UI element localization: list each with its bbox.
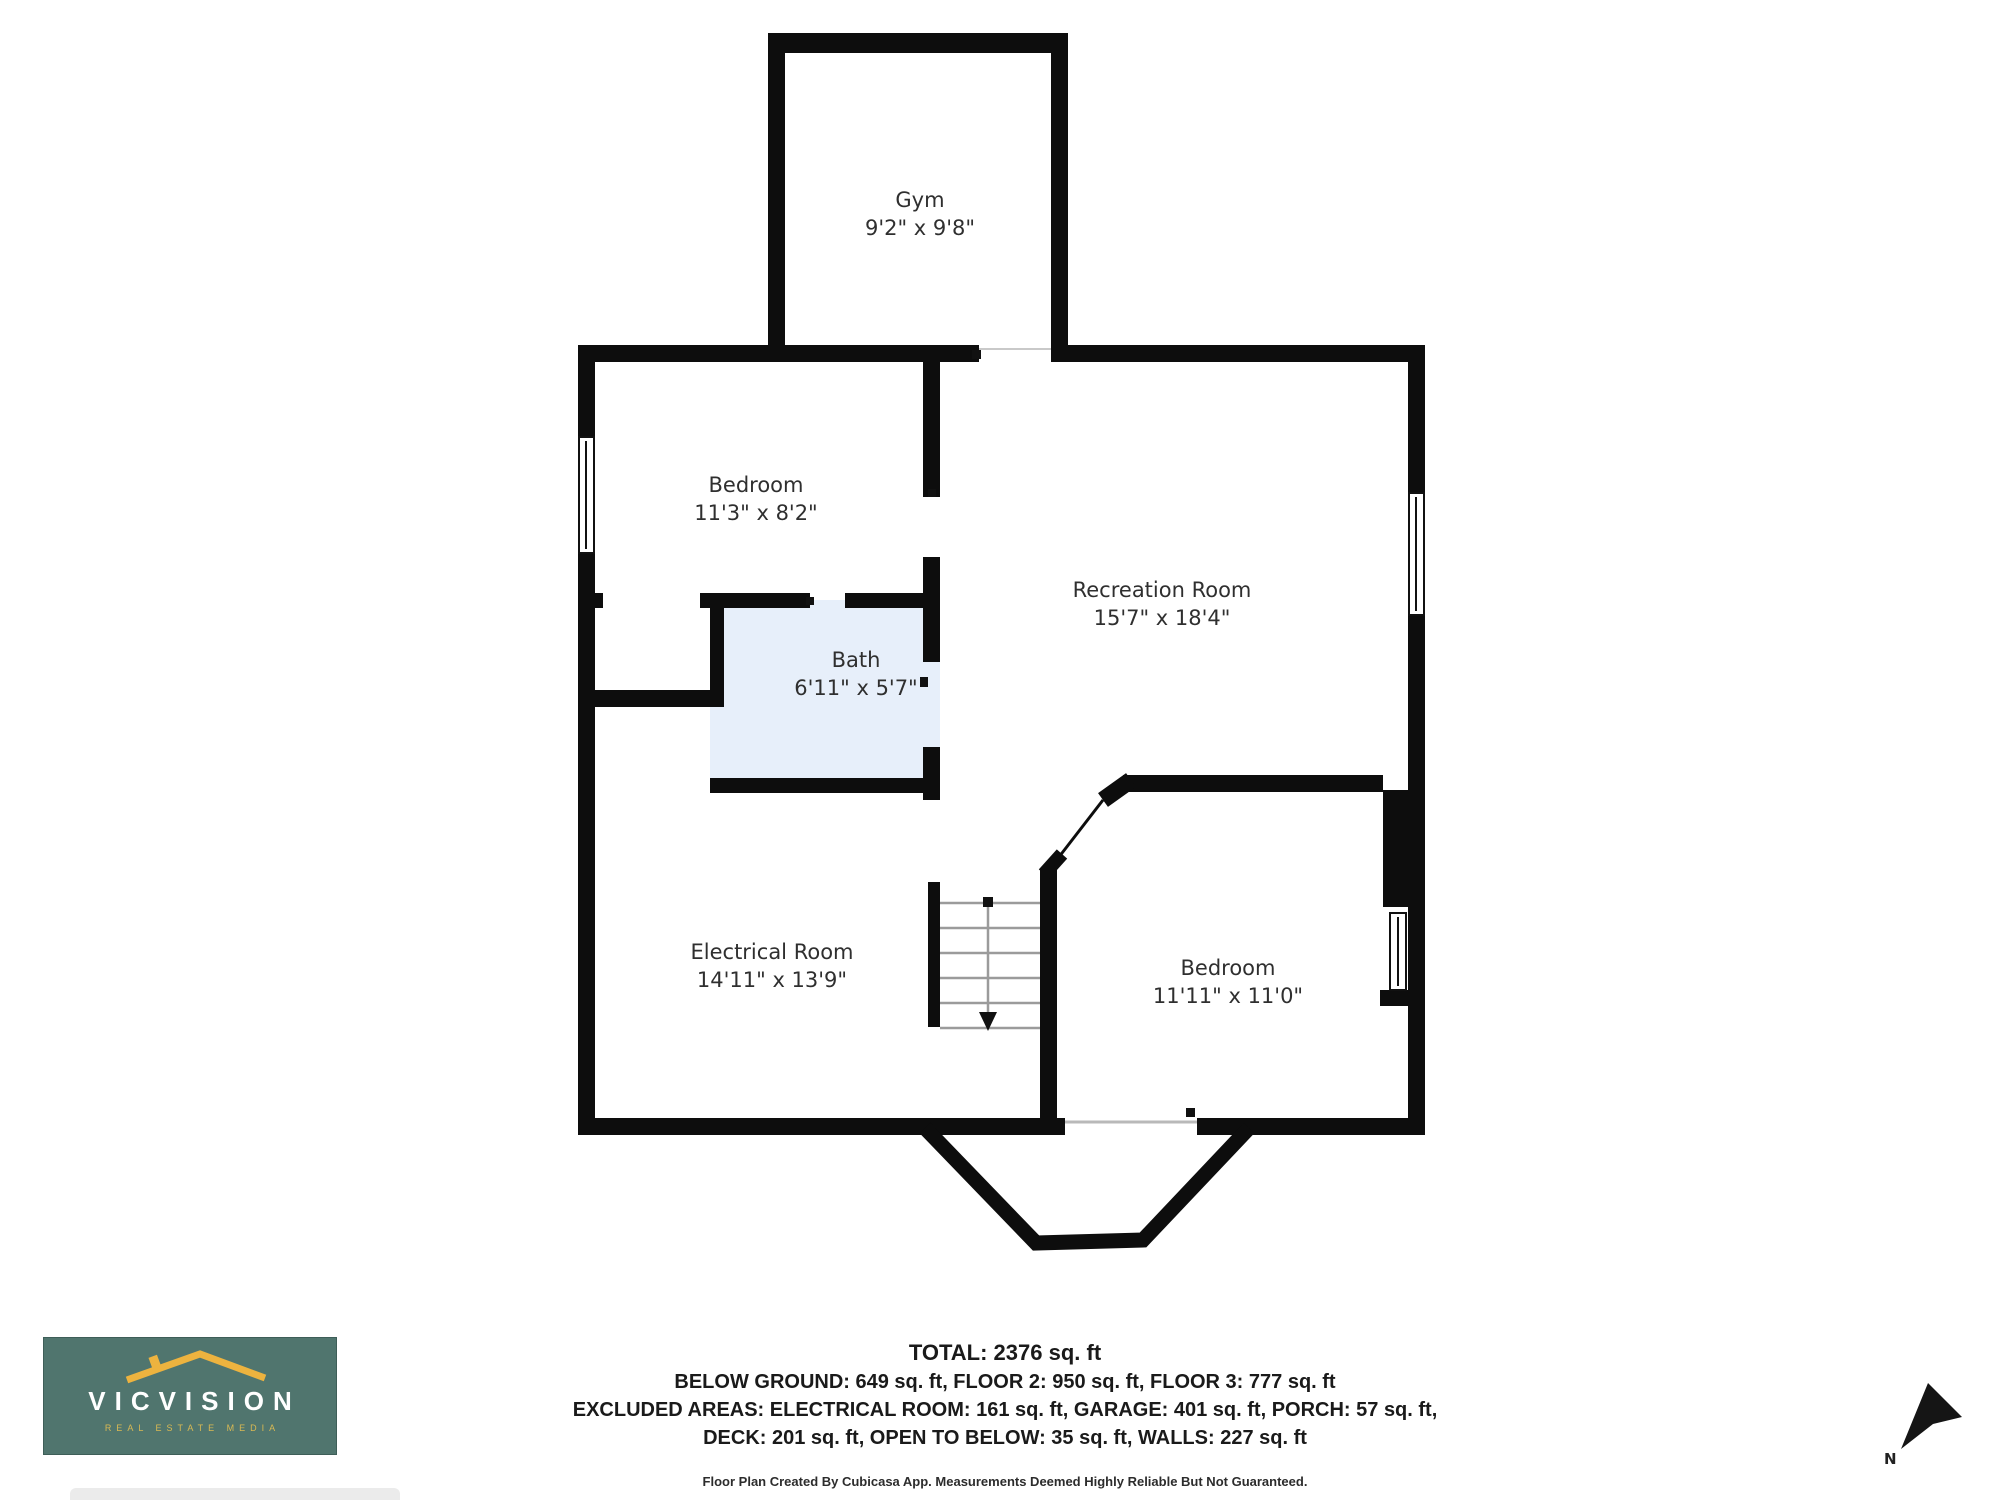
excluded-areas-text-2: DECK: 201 sq. ft, OPEN TO BELOW: 35 sq. … [573,1427,1438,1450]
compass-north-arrow: N [1884,1383,1962,1468]
logo-brand-text: VICVISION [79,1386,300,1417]
credit-text: Floor Plan Created By Cubicasa App. Meas… [573,1474,1438,1489]
room-name: Bedroom [694,471,817,499]
floor-plan-drawing: N [0,0,2000,1500]
room-name: Bedroom [1153,954,1303,982]
room-label-bedroom-upper: Bedroom 11'3" x 8'2" [694,471,817,527]
vicvision-logo: VICVISION REAL ESTATE MEDIA [43,1337,337,1455]
room-dimensions: 11'3" x 8'2" [694,499,817,527]
room-dimensions: 11'11" x 11'0" [1153,982,1303,1010]
logo-tagline-text: REAL ESTATE MEDIA [100,1423,280,1433]
stairs-icon [940,897,1040,1031]
room-dimensions: 15'7" x 18'4" [1073,604,1252,632]
room-label-recreation-room: Recreation Room 15'7" x 18'4" [1073,576,1252,632]
room-dimensions: 6'11" x 5'7" [794,674,917,702]
room-name: Recreation Room [1073,576,1252,604]
bottom-edge-strip [70,1488,400,1500]
room-label-bedroom-lower: Bedroom 11'11" x 11'0" [1153,954,1303,1010]
compass-label: N [1884,1450,1897,1468]
room-dimensions: 9'2" x 9'8" [865,214,975,242]
floor-plan-page: N Gym 9'2" x 9'8" Bedroom 11'3" x 8'2" R… [0,0,2000,1500]
room-name: Gym [865,186,975,214]
room-name: Bath [794,646,917,674]
roof-icon [105,1346,275,1384]
total-area-text: TOTAL: 2376 sq. ft [573,1340,1438,1366]
room-label-electrical-room: Electrical Room 14'11" x 13'9" [691,938,854,994]
floor-areas-text: BELOW GROUND: 649 sq. ft, FLOOR 2: 950 s… [573,1371,1438,1394]
area-summary: TOTAL: 2376 sq. ft BELOW GROUND: 649 sq.… [573,1340,1438,1489]
room-name: Electrical Room [691,938,854,966]
room-label-gym: Gym 9'2" x 9'8" [865,186,975,242]
room-label-bath: Bath 6'11" x 5'7" [794,646,917,702]
room-dimensions: 14'11" x 13'9" [691,966,854,994]
excluded-areas-text: EXCLUDED AREAS: ELECTRICAL ROOM: 161 sq.… [573,1399,1438,1422]
bay-window-wall [925,1128,1249,1243]
door-leaf [1052,800,1103,866]
